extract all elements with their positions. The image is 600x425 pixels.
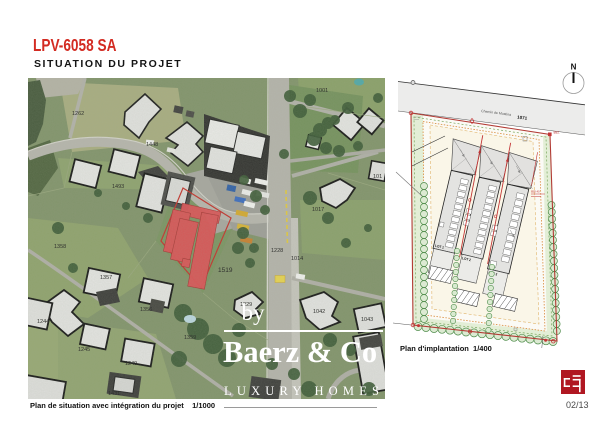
svg-text:858.40: 858.40 <box>531 190 540 194</box>
svg-text:882.: 882. <box>554 131 561 135</box>
svg-text:N: N <box>571 63 577 72</box>
